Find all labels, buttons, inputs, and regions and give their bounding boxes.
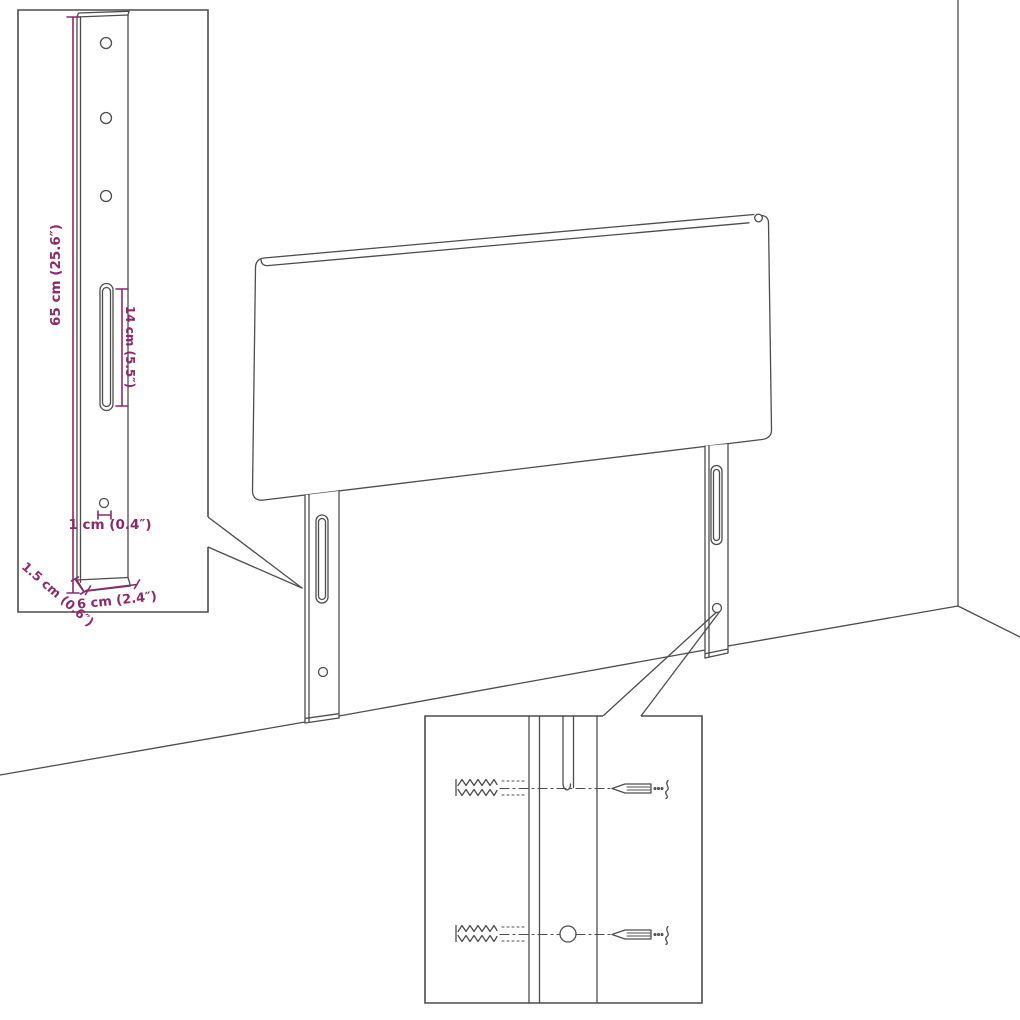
headboard-leg-left (305, 491, 339, 723)
panel-outline (253, 215, 772, 501)
callout-line-left (603, 613, 716, 717)
diagram-canvas: 65 cm (25.6″) 14 cm (5.5″) 1 cm (0.4″) 1… (0, 0, 1020, 1020)
leg-left-face (305, 491, 339, 723)
callout-line-right (641, 613, 719, 717)
headboard-dimension-diagram: 65 cm (25.6″) 14 cm (5.5″) 1 cm (0.4″) 1… (0, 0, 1020, 1020)
headboard-panel (253, 214, 772, 500)
floor-line-middle (339, 650, 705, 716)
slot-dimension-label: 14 cm (5.5″) (123, 306, 137, 388)
height-dimension-label: 65 cm (25.6″) (48, 224, 64, 326)
callout-wedge-left (208, 517, 302, 588)
floor-line-left (0, 722, 305, 775)
screw-detail-inset (425, 716, 702, 1003)
leg-detail-inset: 65 cm (25.6″) 14 cm (5.5″) 1 cm (0.4″) 1… (18, 10, 208, 629)
callout-wedge-bottom (603, 613, 719, 717)
bracket-hole-1 (101, 38, 112, 49)
bracket-small-hole (100, 499, 109, 508)
panel-top-right-curl (755, 214, 763, 222)
hole-dimension-label: 1 cm (0.4″) (68, 517, 151, 533)
floor-line-right (958, 606, 1020, 637)
floor-line-right-of-leg (728, 606, 958, 646)
mounting-hole (560, 926, 576, 942)
bracket-hole-3 (101, 191, 112, 202)
bracket-hole-2 (101, 113, 112, 124)
